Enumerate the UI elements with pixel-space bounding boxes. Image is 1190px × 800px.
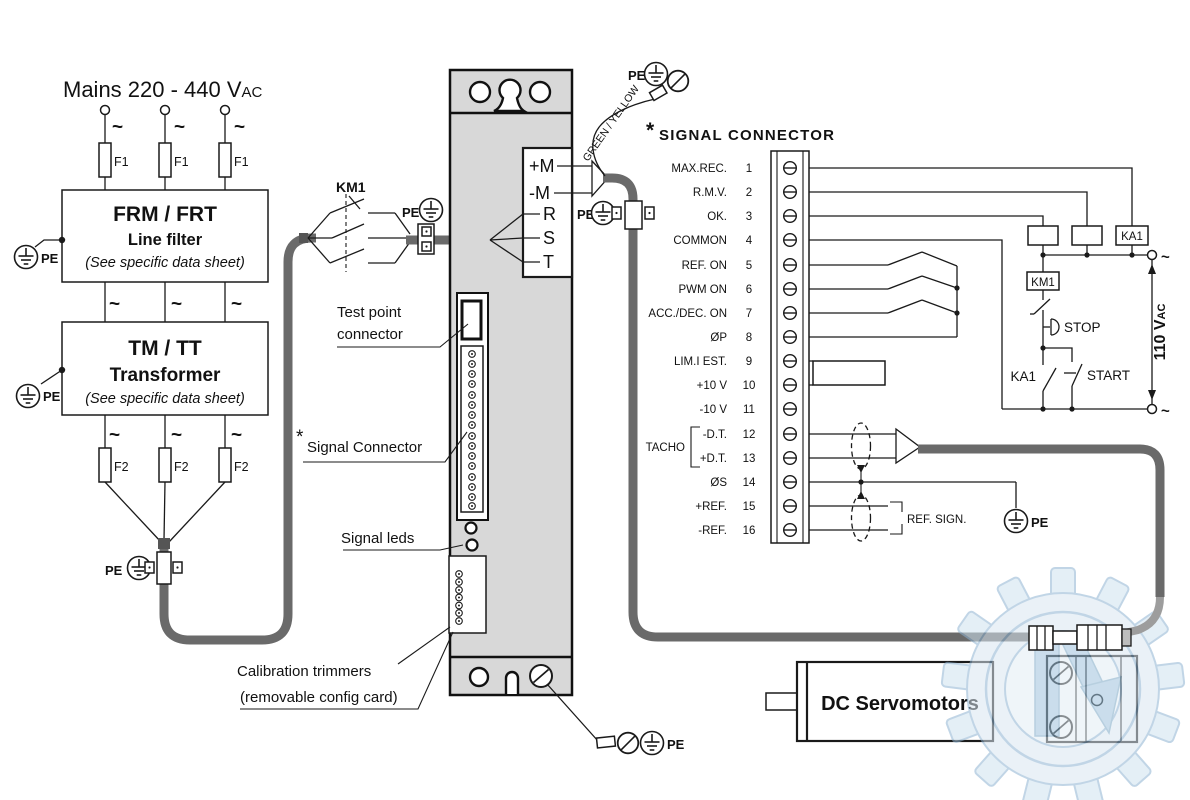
diagram-canvas: Mains 220 - 440 VAC ~ ~ ~ F1 F1 F1 FRM /…	[0, 0, 1190, 800]
signal-connector-label: Signal Connector	[307, 439, 422, 456]
svg-text:~: ~	[234, 117, 245, 138]
ref-sign-label: REF. SIGN.	[907, 514, 966, 526]
svg-text:15: 15	[743, 501, 756, 513]
svg-text:LIM.I EST.: LIM.I EST.	[674, 356, 727, 368]
svg-text:16: 16	[743, 525, 756, 537]
svg-text:KA1: KA1	[1010, 369, 1036, 384]
svg-text:13: 13	[743, 453, 756, 465]
voltage-label: 110 VAC	[1152, 304, 1169, 361]
km1-label: KM1	[336, 179, 366, 195]
svg-text:11: 11	[743, 404, 755, 416]
svg-text:ØS: ØS	[710, 477, 727, 489]
terminal-numbers: 1 2 3 4 5 6 7 8 9 10 11 12 13 14 15 16	[743, 163, 756, 537]
svg-text:4: 4	[746, 235, 753, 247]
svg-text:F1: F1	[234, 155, 249, 169]
ground-icon	[1005, 510, 1028, 533]
calibration-label: Calibration trimmers	[237, 663, 371, 680]
km1-contactor: KM1	[299, 179, 410, 272]
ring-terminal-icon	[618, 733, 639, 754]
fuse-f2	[219, 448, 231, 482]
svg-text:T: T	[543, 252, 554, 272]
motor-cable-clamp: PE	[577, 201, 654, 229]
supply-terminal	[1148, 405, 1157, 414]
svg-text:F1: F1	[114, 155, 129, 169]
svg-text:F2: F2	[174, 460, 189, 474]
signal-wiring: PE REF. SIGN.	[809, 168, 1132, 541]
ground-icon	[15, 246, 38, 269]
ground-icon	[645, 63, 668, 86]
svg-text:~: ~	[109, 425, 120, 446]
filter-to-transformer: ~ ~ ~	[105, 282, 242, 322]
svg-text:PE: PE	[43, 389, 61, 404]
svg-text:2: 2	[746, 187, 752, 199]
svg-text:8: 8	[746, 332, 752, 344]
trimmer-panel	[449, 556, 486, 633]
start-label: START	[1087, 368, 1130, 383]
svg-text:3: 3	[746, 211, 752, 223]
mains-section: Mains 220 - 440 VAC ~ ~ ~ F1 F1 F1 FRM /…	[15, 77, 269, 542]
stop-button-icon	[1051, 319, 1059, 335]
mains-phase-lines: ~ ~ ~ F1 F1 F1	[99, 106, 249, 191]
svg-text:5: 5	[746, 260, 752, 272]
svg-text:+10 V: +10 V	[697, 380, 728, 392]
fuse-f1	[159, 143, 171, 177]
svg-text:Line filter: Line filter	[128, 231, 203, 249]
test-point-connector	[462, 301, 481, 339]
signal-led	[466, 523, 477, 534]
svg-text:R.M.V.: R.M.V.	[693, 187, 727, 199]
ground-screw	[530, 665, 552, 687]
fuse-f1	[99, 143, 111, 177]
svg-text:*: *	[296, 427, 304, 448]
svg-text:-REF.: -REF.	[698, 525, 727, 537]
relay-coil	[1072, 226, 1102, 245]
brand-watermark-gear	[941, 568, 1184, 800]
test-point-label: Test point	[337, 304, 402, 321]
svg-text:Transformer: Transformer	[110, 365, 221, 386]
transformer: TM / TT Transformer (See specific data s…	[17, 322, 269, 415]
svg-text:PE: PE	[1031, 515, 1049, 530]
svg-text:-D.T.: -D.T.	[703, 429, 727, 441]
fuse-f1	[219, 143, 231, 177]
control-circuit: KA1 ~ KM1 STOP KA1 START ~	[1002, 226, 1170, 420]
mount-hole	[530, 82, 550, 102]
svg-text:PE: PE	[628, 68, 646, 83]
relay-coil	[1028, 226, 1058, 245]
svg-text:(removable config card): (removable config card)	[240, 689, 398, 706]
svg-text:9: 9	[746, 356, 752, 368]
ring-terminal-icon	[668, 71, 689, 92]
svg-text:~: ~	[231, 425, 242, 446]
supply-terminal	[1148, 251, 1157, 260]
svg-text:+REF.: +REF.	[695, 501, 727, 513]
svg-text:12: 12	[743, 429, 756, 441]
green-yellow-wire: PE GREEN / YELLOW	[581, 63, 689, 177]
mount-hole	[470, 668, 488, 686]
filter-model: FRM / FRT	[113, 203, 217, 226]
ground-icon	[420, 199, 443, 222]
cable-glands	[1029, 625, 1131, 650]
svg-text:OK.: OK.	[707, 211, 727, 223]
motor-label: DC Servomotors	[821, 693, 979, 715]
svg-text:1: 1	[746, 163, 752, 175]
svg-text:ACC./DEC. ON: ACC./DEC. ON	[648, 308, 727, 320]
svg-text:(See specific data sheet): (See specific data sheet)	[85, 391, 245, 407]
motor-power-cable	[603, 178, 1036, 637]
wiring-diagram: Mains 220 - 440 VAC ~ ~ ~ F1 F1 F1 FRM /…	[0, 0, 1190, 800]
svg-text:7: 7	[746, 308, 752, 320]
svg-text:F2: F2	[234, 460, 249, 474]
svg-text:(See specific data sheet): (See specific data sheet)	[85, 255, 245, 271]
module-annotations: Test point connector * Signal Connector …	[237, 304, 468, 709]
signal-connector-heading: SIGNAL CONNECTOR	[659, 127, 835, 144]
svg-text:ØP: ØP	[710, 332, 727, 344]
svg-text:~: ~	[171, 425, 182, 446]
motor-shaft	[766, 693, 797, 710]
svg-text:R: R	[543, 204, 556, 224]
svg-text:~: ~	[171, 294, 182, 315]
shield-ellipse	[852, 423, 871, 469]
svg-text:10: 10	[743, 380, 756, 392]
mains-title: Mains 220 - 440 VAC	[63, 77, 263, 102]
svg-text:COMMON: COMMON	[673, 235, 727, 247]
svg-text:~: ~	[1161, 249, 1170, 266]
signal-leds-label: Signal leds	[341, 530, 414, 547]
transformer-cable-clamp: PE	[105, 552, 182, 584]
svg-text:~: ~	[1161, 403, 1170, 420]
svg-text:TM / TT: TM / TT	[128, 337, 202, 360]
svg-text:6: 6	[746, 284, 752, 296]
stop-label: STOP	[1064, 320, 1101, 335]
svg-text:~: ~	[112, 117, 123, 138]
line-filter: FRM / FRT Line filter (See specific data…	[15, 190, 269, 282]
ground-icon	[17, 385, 40, 408]
green-yellow-label: GREEN / YELLOW	[581, 83, 642, 163]
svg-text:-M: -M	[529, 183, 550, 203]
terminal-labels: MAX.REC. R.M.V. OK. COMMON REF. ON PWM O…	[648, 163, 727, 537]
signal-led	[467, 540, 478, 551]
tacho-label: TACHO	[646, 442, 685, 454]
svg-text:S: S	[543, 228, 555, 248]
mount-hole	[470, 82, 490, 102]
tacho-cable-head	[896, 429, 920, 463]
keyhole-slot	[506, 672, 518, 694]
svg-text:PE: PE	[41, 251, 59, 266]
svg-text:+M: +M	[529, 156, 555, 176]
svg-text:KA1: KA1	[1121, 231, 1143, 243]
ground-icon	[592, 202, 615, 225]
svg-text:-10 V: -10 V	[700, 404, 728, 416]
svg-text:connector: connector	[337, 326, 403, 343]
svg-text:F1: F1	[174, 155, 189, 169]
svg-text:*: *	[646, 119, 655, 142]
svg-text:14: 14	[743, 477, 756, 489]
svg-text:+D.T.: +D.T.	[700, 453, 727, 465]
svg-text:KM1: KM1	[1031, 277, 1055, 289]
svg-text:MAX.REC.: MAX.REC.	[671, 163, 727, 175]
svg-text:~: ~	[109, 294, 120, 315]
svg-text:~: ~	[231, 294, 242, 315]
svg-text:PWM ON: PWM ON	[678, 284, 727, 296]
svg-text:PE: PE	[105, 563, 123, 578]
svg-text:~: ~	[174, 117, 185, 138]
svg-text:REF. ON: REF. ON	[682, 260, 727, 272]
signal-connector-section: * SIGNAL CONNECTOR MAX.REC. R.M.V. OK. C…	[646, 119, 836, 543]
svg-text:F2: F2	[114, 460, 129, 474]
limit-resistor	[813, 361, 885, 385]
cable-end	[158, 538, 170, 549]
transformer-output: ~ ~ ~ F2 F2 F2	[99, 415, 249, 542]
fuse-f2	[159, 448, 171, 482]
fuse-f2	[99, 448, 111, 482]
shield-ellipse	[852, 495, 871, 541]
drive-module: +M -M R S T	[449, 70, 592, 695]
svg-text:PE: PE	[667, 737, 685, 752]
svg-text:PE: PE	[402, 205, 420, 220]
ground-icon	[641, 732, 664, 755]
